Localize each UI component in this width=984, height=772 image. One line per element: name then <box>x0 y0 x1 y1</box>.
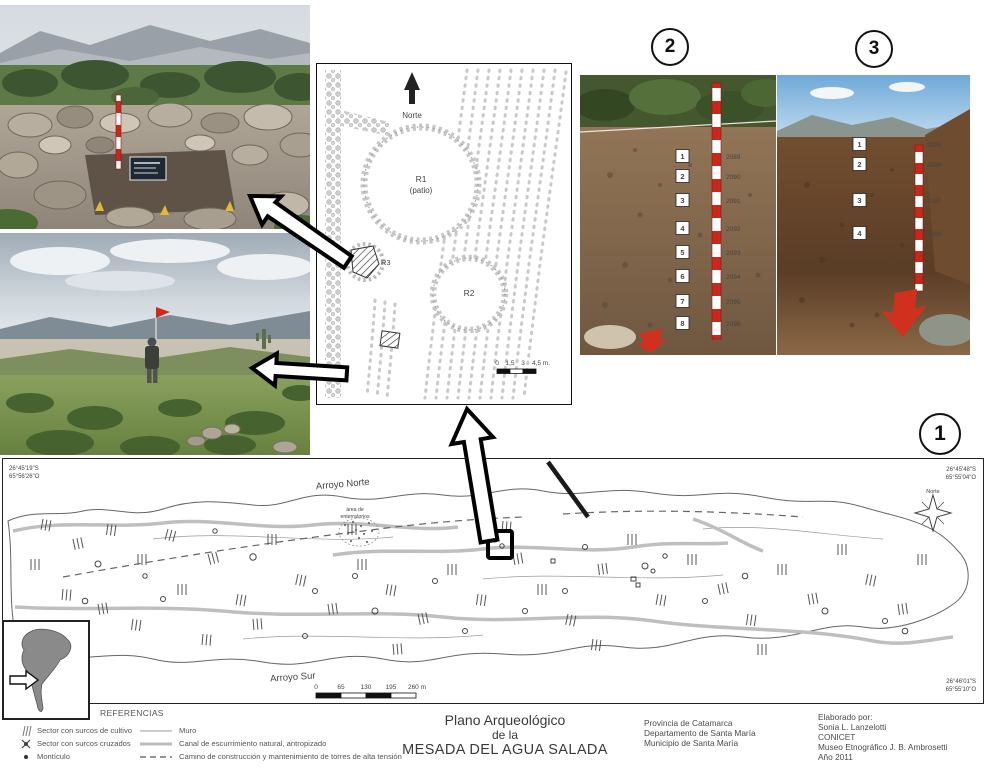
p3-code-2: 2086 <box>927 162 942 169</box>
p2-code-2: 2090 <box>726 174 741 181</box>
legend-item-cruzados: Sector con surcos cruzados <box>20 737 132 750</box>
p2-code-4: 2092 <box>726 226 741 233</box>
legend-label-cultivo: Sector con surcos de cultivo <box>37 726 132 735</box>
map-scale-3: 195 <box>386 684 397 691</box>
site-plan-panel: R1 (patio) R2 R3 Norte 0 1,5 3 4,5 m. <box>316 63 572 405</box>
p2-tag-3: 3 <box>680 196 684 205</box>
p2-code-5: 2093 <box>726 250 741 257</box>
map-title-line2: de la <box>400 728 610 742</box>
p3-code-3: 2087 <box>927 198 942 205</box>
legend-label-muro: Muro <box>179 726 196 735</box>
panel-label-2-text: 2 <box>665 36 676 58</box>
photo-landscape <box>0 233 310 455</box>
plan-stone-band-branch <box>341 110 389 136</box>
plan-r3-label: R3 <box>381 258 391 267</box>
map-coord-tr-2: 65°55'04"O <box>946 475 977 481</box>
legend-label-monticulo: Montículo <box>37 752 70 761</box>
panel-label-1: 1 <box>919 413 961 455</box>
legend-left-column: Sector con surcos de cultivo Sector con … <box>20 724 132 763</box>
map-coord-tr-1: 26°45'48"S <box>946 467 976 473</box>
legend-label-cruzados: Sector con surcos cruzados <box>37 739 131 748</box>
legend-label-canal: Canal de escurrimiento natural, antropiz… <box>179 739 326 748</box>
legend-item-cultivo: Sector con surcos de cultivo <box>20 724 132 737</box>
map-arroyo-norte-label: Arroyo Norte <box>315 477 370 493</box>
plan-north-arrow <box>404 72 420 104</box>
p2-tag-5: 5 <box>680 248 684 257</box>
profile2-rock <box>584 325 636 349</box>
map-coord-br-1: 26°46'01"S <box>946 679 976 685</box>
location-municipality: Municipio de Santa María <box>644 738 756 748</box>
map-title-line3: MESADA DEL AGUA SALADA <box>400 742 610 758</box>
map-arroyo-sur-label: Arroyo Sur <box>270 670 316 684</box>
map-compass-rose: Norte <box>915 489 951 531</box>
p3-code-1: 2085 <box>927 142 942 149</box>
inset-south-america-map <box>2 620 90 720</box>
map-area-label-1: área de <box>346 507 364 513</box>
map-mesada-outline <box>8 489 968 664</box>
p3-tag-1: 1 <box>857 140 861 149</box>
p2-tag-2: 2 <box>680 172 684 181</box>
map-title-block: Plano Arqueológico de la MESADA DEL AGUA… <box>400 712 610 758</box>
credits-museum: Museo Etnográfico J. B. Ambrosetti <box>818 742 948 752</box>
p2-code-6: 2094 <box>726 274 741 281</box>
photo1-survey-rod <box>116 95 121 169</box>
legend-item-canal: Canal de escurrimiento natural, antropiz… <box>138 737 402 750</box>
plan-r3-structure <box>351 246 379 278</box>
legend-item-muro: Muro <box>138 724 402 737</box>
map-coord-tl-2: 65°56'26"O <box>9 474 40 480</box>
archaeological-map-drawing: área de enterratorios Arroyo Norte Arroy… <box>3 459 981 701</box>
photo1-sign-board <box>130 157 166 180</box>
panel-label-1-text: 1 <box>934 422 946 446</box>
p3-code-4: 2088 <box>927 231 942 238</box>
site-plan-drawing: R1 (patio) R2 R3 Norte 0 1,5 3 4,5 m. <box>317 64 571 404</box>
location-province: Provincia de Catamarca <box>644 718 756 728</box>
archaeological-map-panel: área de enterratorios Arroyo Norte Arroy… <box>2 458 984 704</box>
inset-map-drawing <box>4 622 88 718</box>
photo-profile-3: 1 2 3 4 2085 2086 2087 2088 <box>777 75 970 355</box>
map-canals <box>13 519 953 643</box>
p2-tag-8: 8 <box>680 319 684 328</box>
plan-scale-bar: 0 1,5 3 4,5 m. <box>495 360 550 374</box>
furrows-icon <box>20 725 32 737</box>
credits-heading: Elaborado por: <box>818 712 948 722</box>
map-scale-bar: 0 65 130 195 260 m <box>314 684 426 698</box>
plan-scale-2: 3 <box>521 360 525 367</box>
p2-tag-6: 6 <box>680 272 684 281</box>
mound-dot-icon <box>20 751 32 763</box>
legend-title: REFERENCIAS <box>100 708 164 718</box>
person-torso <box>145 346 159 369</box>
p2-tag-7: 7 <box>680 297 684 306</box>
crossed-furrows-icon <box>20 738 32 750</box>
credits-year: Año 2011 <box>818 752 948 762</box>
credits-author: Sonia L. Lanzelotti <box>818 722 948 732</box>
map-scale-1: 65 <box>337 684 345 691</box>
map-scale-4: 260 m <box>408 684 426 691</box>
map-inner-contours <box>153 527 883 639</box>
plan-scale-1: 1,5 <box>505 360 514 367</box>
profile2-survey-rod <box>712 83 721 339</box>
plan-small-structure <box>380 331 400 348</box>
legend-item-camino: Camino de construcción y mantenimiento d… <box>138 750 402 763</box>
legend-right-column: Muro Canal de escurrimiento natural, ant… <box>138 724 402 763</box>
p2-code-3: 2091 <box>726 198 741 205</box>
map-coord-br-2: 65°55'10"O <box>946 687 977 693</box>
map-title-line1: Plano Arqueológico <box>400 712 610 728</box>
profile3-survey-rod <box>915 145 923 291</box>
location-department: Departamento de Santa María <box>644 728 756 738</box>
legend-label-camino: Camino de construcción y mantenimiento d… <box>179 752 402 761</box>
panel-label-3: 3 <box>855 30 893 68</box>
person-leg <box>147 369 152 383</box>
plan-north-label: Norte <box>402 111 422 120</box>
photo-profile-2: 1 2 3 4 5 6 7 8 2089 2090 2091 2092 2093… <box>580 75 776 355</box>
plan-stone-band <box>325 70 341 398</box>
figure-canvas: R1 (patio) R2 R3 Norte 0 1,5 3 4,5 m. <box>0 0 984 772</box>
p3-tag-2: 2 <box>857 160 861 169</box>
plan-r1-label: R1 <box>416 174 427 184</box>
map-scale-0: 0 <box>314 684 318 691</box>
compass-star-icon <box>915 495 951 531</box>
plan-scale-0: 0 <box>495 360 499 367</box>
p2-code-1: 2089 <box>726 154 741 161</box>
map-area-label-2: enterratorios <box>340 514 370 520</box>
p3-tag-3: 3 <box>857 196 861 205</box>
map-furrow-ticks <box>31 519 926 655</box>
p2-tag-1: 1 <box>680 152 684 161</box>
p2-code-8: 2096 <box>726 321 741 328</box>
south-america-shape <box>22 629 71 711</box>
person-head <box>148 338 157 347</box>
photo-excavation <box>0 5 310 229</box>
location-block: Provincia de Catamarca Departamento de S… <box>644 718 756 748</box>
wall-line-icon <box>138 727 174 735</box>
panel-label-3-text: 3 <box>869 38 880 60</box>
legend-item-monticulo: Montículo <box>20 750 132 763</box>
canal-line-icon <box>138 740 174 748</box>
plan-r2-label: R2 <box>464 288 475 298</box>
plan-scale-3: 4,5 m. <box>532 360 550 367</box>
dashed-road-icon <box>138 753 174 761</box>
plan-r1-sublabel: (patio) <box>410 186 433 195</box>
map-heavy-line <box>548 462 588 517</box>
map-scale-2: 130 <box>361 684 372 691</box>
person-leg2 <box>153 369 158 383</box>
map-coord-tl-1: 26°45'19"S <box>9 466 39 472</box>
map-structures <box>82 529 908 639</box>
credits-institution: CONICET <box>818 732 948 742</box>
panel-label-2: 2 <box>651 28 689 66</box>
p2-code-7: 2095 <box>726 299 741 306</box>
credits-block: Elaborado por: Sonia L. Lanzelotti CONIC… <box>818 712 948 763</box>
